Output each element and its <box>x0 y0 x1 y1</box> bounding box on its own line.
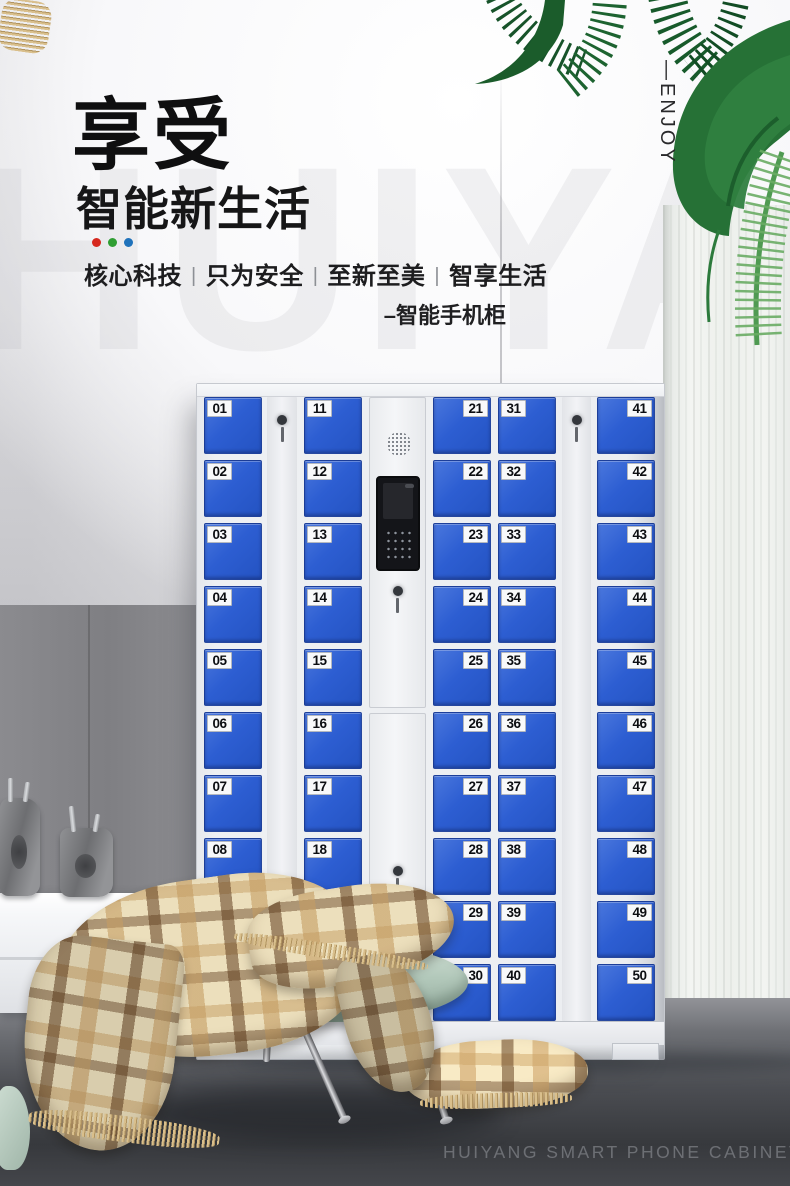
door-number: 11 <box>307 400 332 417</box>
door-number: 03 <box>207 526 232 543</box>
locker-door-22: 22 <box>433 460 491 517</box>
door-number: 13 <box>307 526 332 543</box>
locker-door-42: 42 <box>597 460 655 517</box>
locker-door-50: 50 <box>597 964 655 1021</box>
locker-door-32: 32 <box>498 460 556 517</box>
locker-door-31: 31 <box>498 397 556 454</box>
locker-door-04: 04 <box>204 586 262 643</box>
locker-door-44: 44 <box>597 586 655 643</box>
locker-door-23: 23 <box>433 523 491 580</box>
door-number: 34 <box>501 589 526 606</box>
locker-door-25: 25 <box>433 649 491 706</box>
door-number: 26 <box>463 715 488 732</box>
vase-left <box>0 798 40 896</box>
locker-door-34: 34 <box>498 586 556 643</box>
footer-caption: HUIYANG SMART PHONE CABINET <box>443 1142 790 1163</box>
key-icon <box>575 427 578 442</box>
locker-door-14: 14 <box>304 586 362 643</box>
tagline-part: 智享生活 <box>449 263 547 290</box>
tagline: 核心科技|只为安全|至新至美|智享生活 <box>84 256 547 291</box>
door-number: 47 <box>627 778 652 795</box>
locker-door-48: 48 <box>597 838 655 895</box>
locker-door-45: 45 <box>597 649 655 706</box>
control-lock <box>370 586 425 613</box>
door-number: 44 <box>627 589 652 606</box>
locker-door-33: 33 <box>498 523 556 580</box>
door-number: 25 <box>463 652 488 669</box>
headline-subtitle: 智能新生活 <box>76 186 311 232</box>
door-number: 46 <box>627 715 652 732</box>
door-number: 16 <box>307 715 332 732</box>
locker-door-05: 05 <box>204 649 262 706</box>
locker-door-11: 11 <box>304 397 362 454</box>
locker-door-21: 21 <box>433 397 491 454</box>
door-number: 23 <box>463 526 488 543</box>
door-number: 31 <box>501 400 526 417</box>
door-number: 04 <box>207 589 232 606</box>
door-number: 35 <box>501 652 526 669</box>
door-number: 50 <box>627 967 652 984</box>
lock-strip-right <box>562 397 591 1021</box>
door-number: 12 <box>307 463 332 480</box>
door-number: 39 <box>501 904 526 921</box>
keyhole-icon <box>393 866 403 876</box>
door-number: 22 <box>463 463 488 480</box>
speaker-grille-icon <box>387 432 411 456</box>
door-number: 06 <box>207 715 232 732</box>
tagline-part: 只为安全 <box>206 263 304 290</box>
enjoy-vertical-label: —ENJOY <box>655 60 678 165</box>
accent-dot <box>124 238 133 247</box>
accent-dot <box>92 238 101 247</box>
locker-door-49: 49 <box>597 901 655 958</box>
locker-door-28: 28 <box>433 838 491 895</box>
door-number: 48 <box>627 841 652 858</box>
locker-door-38: 38 <box>498 838 556 895</box>
door-number: 27 <box>463 778 488 795</box>
locker-door-24: 24 <box>433 586 491 643</box>
locker-door-37: 37 <box>498 775 556 832</box>
door-number: 14 <box>307 589 332 606</box>
door-number: 33 <box>501 526 526 543</box>
locker-door-43: 43 <box>597 523 655 580</box>
keyhole-icon <box>572 415 582 425</box>
door-number: 37 <box>501 778 526 795</box>
tagline-part: 核心科技 <box>84 263 182 290</box>
door-number: 41 <box>627 400 652 417</box>
door-number: 29 <box>463 904 488 921</box>
locker-door-06: 06 <box>204 712 262 769</box>
locker-door-46: 46 <box>597 712 655 769</box>
key-icon <box>396 598 399 613</box>
control-panel <box>376 476 420 571</box>
door-number: 28 <box>463 841 488 858</box>
door-number: 15 <box>307 652 332 669</box>
vase-opening <box>11 835 27 868</box>
door-number: 32 <box>501 463 526 480</box>
door-number: 24 <box>463 589 488 606</box>
tagline-separator: | <box>191 265 197 287</box>
blanket-fringe <box>0 0 53 55</box>
door-number: 18 <box>307 841 332 858</box>
locker-door-03: 03 <box>204 523 262 580</box>
keyhole-icon <box>277 415 287 425</box>
cabinet-foot <box>612 1043 659 1060</box>
door-number: 42 <box>627 463 652 480</box>
door-number: 01 <box>207 400 232 417</box>
locker-door-36: 36 <box>498 712 556 769</box>
door-number: 43 <box>627 526 652 543</box>
product-note: –智能手机柜 <box>300 298 506 330</box>
locker-door-01: 01 <box>204 397 262 454</box>
door-number: 21 <box>463 400 488 417</box>
accent-dot <box>108 238 117 247</box>
locker-door-12: 12 <box>304 460 362 517</box>
vase-stick <box>8 778 13 802</box>
door-number: 05 <box>207 652 232 669</box>
keypad-icon <box>385 529 413 561</box>
locker-door-15: 15 <box>304 649 362 706</box>
door-number: 36 <box>501 715 526 732</box>
locker-door-07: 07 <box>204 775 262 832</box>
door-number: 08 <box>207 841 232 858</box>
vase-right <box>60 828 113 897</box>
door-number: 45 <box>627 652 652 669</box>
vase-opening <box>75 854 96 877</box>
door-number: 40 <box>501 967 526 984</box>
control-door-upper <box>369 397 426 708</box>
palm-leaves <box>460 0 790 400</box>
panel-indicator <box>405 484 414 488</box>
locker-door-39: 39 <box>498 901 556 958</box>
door-number: 02 <box>207 463 232 480</box>
key-icon <box>281 427 284 442</box>
locker-door-16: 16 <box>304 712 362 769</box>
locker-door-35: 35 <box>498 649 556 706</box>
door-number: 17 <box>307 778 332 795</box>
tagline-separator: | <box>313 265 319 287</box>
door-number: 07 <box>207 778 232 795</box>
tagline-part: 至新至美 <box>327 263 425 290</box>
locker-door-26: 26 <box>433 712 491 769</box>
locker-door-02: 02 <box>204 460 262 517</box>
tagline-separator: | <box>434 265 440 287</box>
locker-door-27: 27 <box>433 775 491 832</box>
door-number: 49 <box>627 904 652 921</box>
headline-title: 享受 <box>72 96 234 174</box>
locker-door-17: 17 <box>304 775 362 832</box>
locker-door-47: 47 <box>597 775 655 832</box>
locker-door-13: 13 <box>304 523 362 580</box>
locker-door-41: 41 <box>597 397 655 454</box>
locker-door-40: 40 <box>498 964 556 1021</box>
accent-dots <box>92 238 133 247</box>
door-number: 38 <box>501 841 526 858</box>
panel-screen <box>383 483 413 519</box>
keyhole-icon <box>393 586 403 596</box>
